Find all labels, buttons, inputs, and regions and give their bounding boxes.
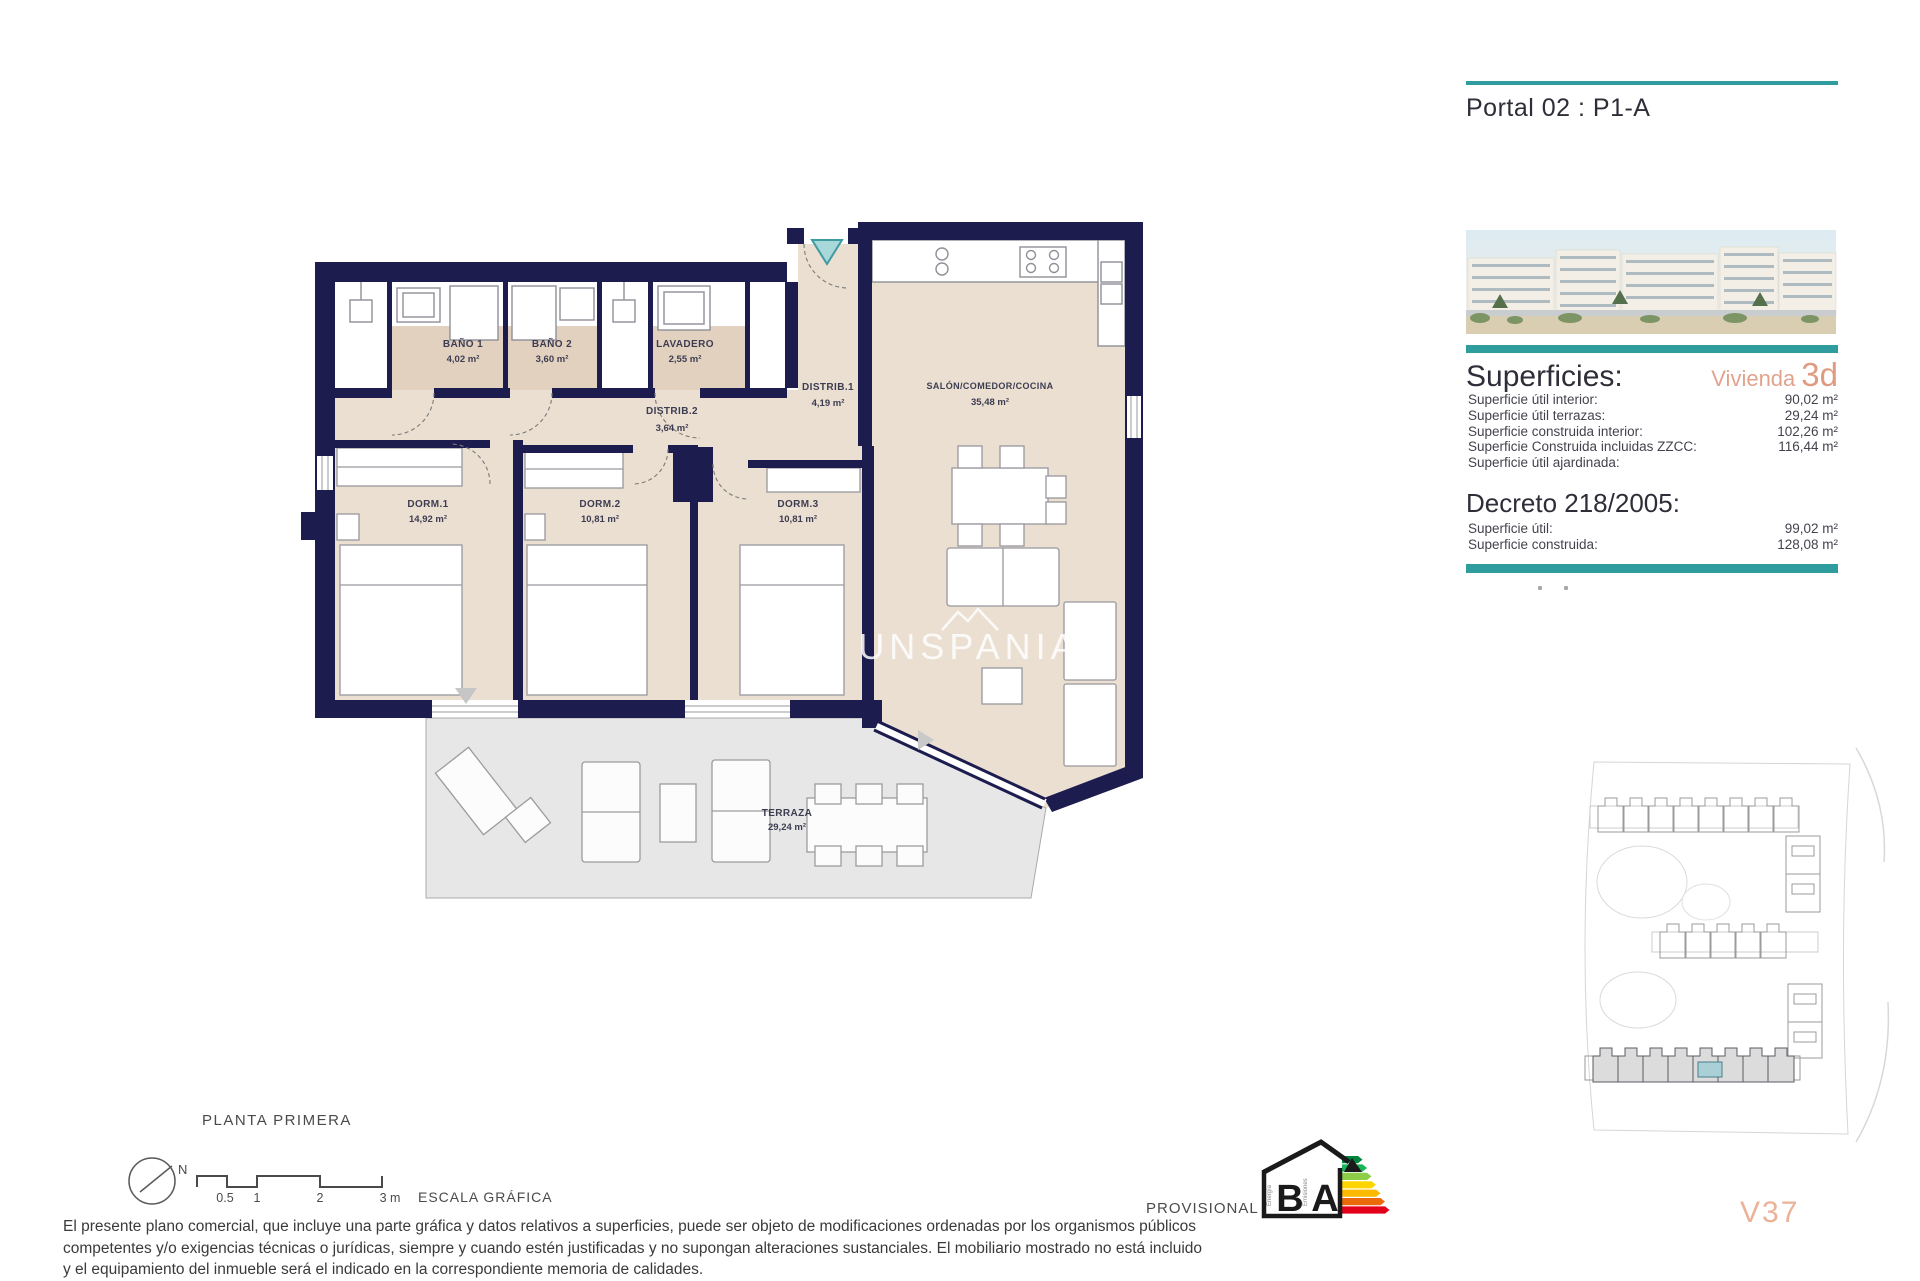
north-label: N <box>178 1162 187 1177</box>
surface-row: Superficie útil ajardinada: <box>1468 455 1838 471</box>
floor-title: PLANTA PRIMERA <box>202 1112 352 1129</box>
room-label: SALÓN/COMEDOR/COCINA <box>927 380 1054 391</box>
vivienda-value: 3d <box>1801 356 1838 393</box>
energy-caption-right: Emisiones <box>1303 1178 1309 1206</box>
room-area: 14,92 m² <box>409 514 447 525</box>
surface-value: 90,02 m² <box>1785 392 1838 408</box>
surface-row: Superficie útil terrazas: 29,24 m² <box>1468 408 1838 424</box>
surface-value: 102,26 m² <box>1777 424 1838 440</box>
site-row-bottom <box>1593 1048 1794 1082</box>
energy-rating-logo: B A Energía Emisiones <box>1264 1142 1390 1220</box>
surface-value: 99,02 m² <box>1785 521 1838 537</box>
energy-letter-b: B <box>1276 1178 1303 1220</box>
room-area: 3,64 m² <box>656 423 689 434</box>
site-highlighted-unit <box>1698 1062 1722 1077</box>
vivienda-label: Vivienda <box>1711 366 1795 391</box>
room-label: DISTRIB.2 <box>646 406 698 417</box>
room-area: 2,55 m² <box>669 354 702 365</box>
superficies-heading: Superficies: <box>1466 360 1623 394</box>
site-row-top <box>1598 798 1799 832</box>
watermark-text: UNSPANIA <box>858 626 1079 667</box>
room-label: LAVADERO <box>656 339 714 350</box>
surface-row: Superficie construida: 128,08 m² <box>1468 537 1838 553</box>
vivienda-type: Vivienda3d <box>1711 356 1838 394</box>
decreto-heading: Decreto 218/2005: <box>1466 488 1680 519</box>
superficies-table: Superficie útil interior: 90,02 m² Super… <box>1468 392 1838 471</box>
room-area: 29,24 m² <box>768 822 806 833</box>
room-label: DORM.3 <box>777 499 818 510</box>
surface-label: Superficie útil ajardinada: <box>1468 455 1620 471</box>
surface-label: Superficie útil: <box>1468 521 1553 537</box>
room-label: DORM.1 <box>407 499 448 510</box>
page-title: Portal 02 : P1-A <box>1466 94 1650 123</box>
energy-caption-left: Energía <box>1267 1184 1273 1206</box>
superficies-header: Superficies: Vivienda3d <box>1466 356 1838 394</box>
surface-label: Superficie útil interior: <box>1468 392 1598 408</box>
room-area: 4,02 m² <box>447 354 480 365</box>
north-compass: N <box>129 1158 187 1204</box>
site-block-right-bottom <box>1788 984 1822 1058</box>
document-canvas: BAÑO 1 4,02 m² BAÑO 2 3,60 m² LAVADERO 2… <box>0 0 1920 1280</box>
energy-letter-a: A <box>1311 1178 1338 1220</box>
room-area: 4,19 m² <box>812 398 845 409</box>
site-plan-map <box>1585 748 1888 1142</box>
header-accent-rule <box>1466 81 1838 85</box>
room-label: DISTRIB.1 <box>802 382 854 393</box>
scale-tick: 1 <box>254 1191 261 1205</box>
site-row-middle <box>1660 924 1786 958</box>
surface-row: Superficie útil interior: 90,02 m² <box>1468 392 1838 408</box>
room-label: BAÑO 1 <box>443 337 483 350</box>
divider-bar-top <box>1466 345 1838 353</box>
surface-row: Superficie útil: 99,02 m² <box>1468 521 1838 537</box>
divider-bar-bottom <box>1466 564 1838 573</box>
surface-value: 29,24 m² <box>1785 408 1838 424</box>
room-area: 10,81 m² <box>779 514 817 525</box>
room-label: DORM.2 <box>579 499 620 510</box>
decreto-table: Superficie útil: 99,02 m² Superficie con… <box>1468 521 1838 553</box>
scale-tick: 0.5 <box>216 1191 233 1205</box>
scale-tick: 3 m <box>380 1191 401 1205</box>
floor-plan: BAÑO 1 4,02 m² BAÑO 2 3,60 m² LAVADERO 2… <box>301 222 1143 898</box>
provisional-label: PROVISIONAL <box>1146 1200 1259 1217</box>
room-label: BAÑO 2 <box>532 337 572 350</box>
surface-value: 116,44 m² <box>1778 439 1838 455</box>
scale-bar: 0.5 1 2 3 m ESCALA GRÁFICA <box>197 1176 553 1205</box>
clipped-text-remnant <box>1538 577 1590 595</box>
surface-label: Superficie construida interior: <box>1468 424 1643 440</box>
surface-value: 128,08 m² <box>1777 537 1838 553</box>
building-render-image <box>1466 230 1836 334</box>
disclaimer-text: El presente plano comercial, que incluye… <box>63 1216 1393 1281</box>
surface-label: Superficie construida: <box>1468 537 1598 553</box>
scale-caption: ESCALA GRÁFICA <box>418 1189 553 1205</box>
room-area: 10,81 m² <box>581 514 619 525</box>
room-label: TERRAZA <box>762 808 813 819</box>
scale-tick: 2 <box>317 1191 324 1205</box>
disclaimer-line: El presente plano comercial, que incluye… <box>63 1216 1393 1238</box>
surface-label: Superficie útil terrazas: <box>1468 408 1605 424</box>
room-area: 35,48 m² <box>971 397 1009 408</box>
unit-code: V37 <box>1740 1196 1799 1230</box>
site-block-right-top <box>1786 836 1820 912</box>
disclaimer-line: y el equipamiento del inmueble será el i… <box>63 1259 1393 1281</box>
surface-label: Superficie Construida incluidas ZZCC: <box>1468 439 1697 455</box>
surface-row: Superficie Construida incluidas ZZCC: 11… <box>1468 439 1838 455</box>
room-area: 3,60 m² <box>536 354 569 365</box>
disclaimer-line: competentes y/o exigencias técnicas o ju… <box>63 1238 1393 1260</box>
surface-row: Superficie construida interior: 102,26 m… <box>1468 424 1838 440</box>
